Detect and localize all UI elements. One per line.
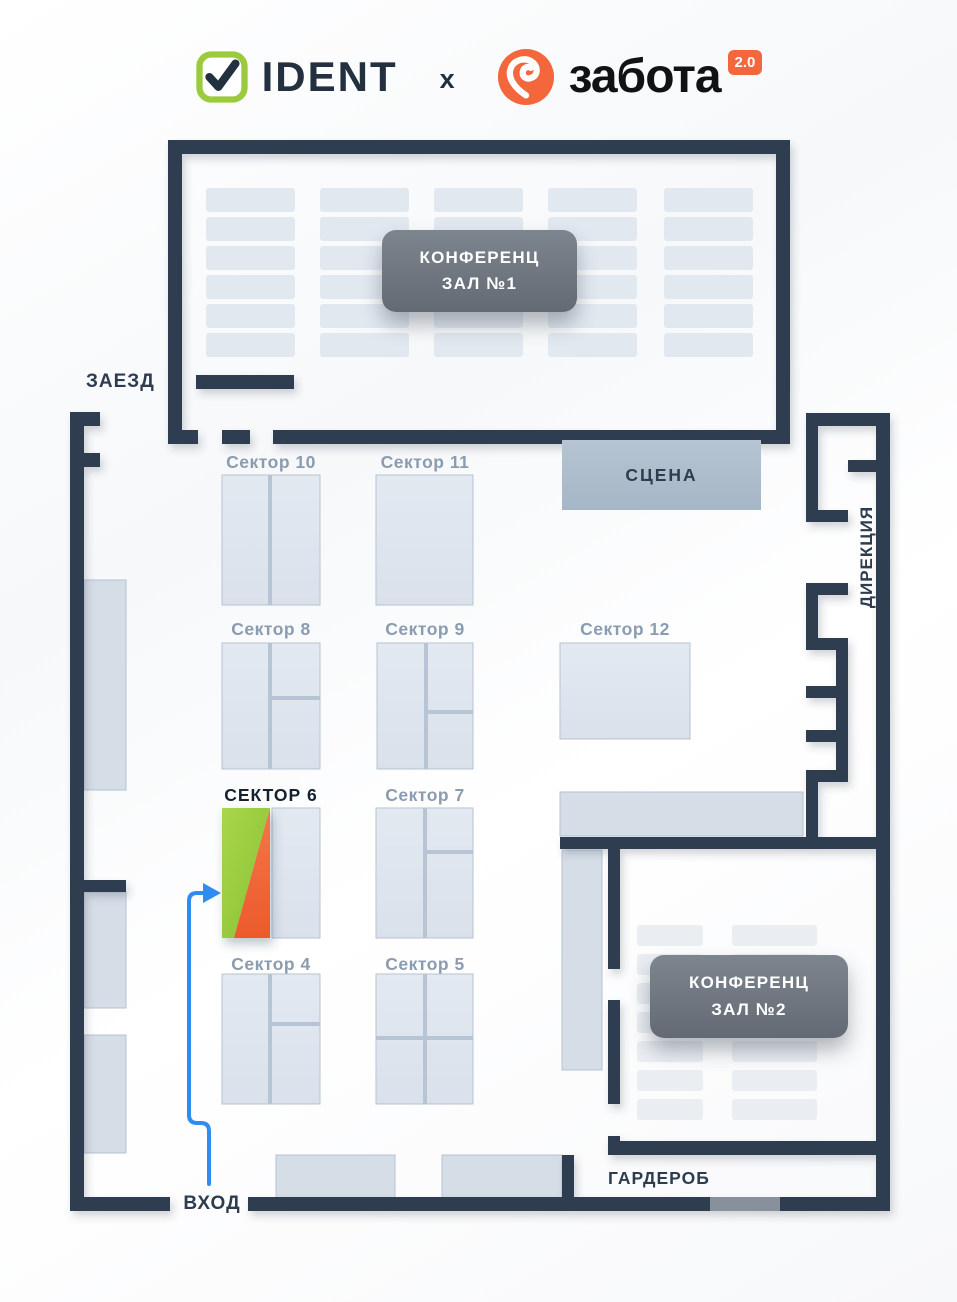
seat-row xyxy=(637,1070,703,1091)
sector-5-label: Сектор 5 xyxy=(385,954,464,975)
seat-row xyxy=(664,246,753,270)
registration-counter xyxy=(562,850,602,1070)
booth-sector-12 xyxy=(560,643,690,739)
entrance-route-arrow xyxy=(189,883,221,1184)
conf-hall-1-line2: ЗАЛ №1 xyxy=(442,271,517,297)
bottom-table-1 xyxy=(276,1155,395,1199)
conference-hall-2-badge: КОНФЕРЕНЦ ЗАЛ №2 xyxy=(650,955,848,1038)
conf-hall-1-line1: КОНФЕРЕНЦ xyxy=(420,245,540,271)
arrowhead-icon xyxy=(203,883,221,903)
sector-7-label: Сектор 7 xyxy=(385,785,464,806)
seat-row xyxy=(664,188,753,212)
seat-row xyxy=(206,275,295,299)
seat-row xyxy=(434,188,523,212)
seat-row xyxy=(548,188,637,212)
seat-row xyxy=(206,188,295,212)
seat-row xyxy=(664,217,753,241)
direction-office-label: ДИРЕКЦИЯ xyxy=(857,477,877,637)
stage-area: СЦЕНА xyxy=(562,440,761,510)
conf-hall-2-line2: ЗАЛ №2 xyxy=(711,997,786,1023)
sector-8-label: Сектор 8 xyxy=(231,619,310,640)
drive-in-label: ЗАЕЗД xyxy=(86,371,155,393)
stage-label: СЦЕНА xyxy=(625,465,697,486)
seat-row xyxy=(206,304,295,328)
seat-row xyxy=(732,1070,817,1091)
sector-6-label: СЕКТОР 6 xyxy=(224,785,318,806)
left-wall-counter-1 xyxy=(84,580,126,790)
long-counter xyxy=(560,792,803,836)
highlighted-booth-sector-6 xyxy=(222,808,270,938)
sector-12-label: Сектор 12 xyxy=(580,619,670,640)
cloakroom-label: ГАРДЕРОБ xyxy=(608,1168,710,1189)
seat-row xyxy=(637,925,703,946)
seat-row xyxy=(206,217,295,241)
seat-row xyxy=(637,1099,703,1120)
venue-floor-plan: IDENT x забота 2.0 xyxy=(0,0,957,1302)
bottom-table-2 xyxy=(442,1155,562,1199)
seat-row xyxy=(320,188,409,212)
seat-row xyxy=(732,1099,817,1120)
entrance-label: ВХОД xyxy=(183,1193,240,1215)
seat-row xyxy=(434,333,523,357)
sector-11-label: Сектор 11 xyxy=(381,452,470,473)
seat-row xyxy=(732,925,817,946)
booth-sector-6-right xyxy=(272,808,320,938)
conf-hall-2-line1: КОНФЕРЕНЦ xyxy=(689,970,809,996)
seat-row xyxy=(548,333,637,357)
seat-row xyxy=(320,333,409,357)
seat-row xyxy=(664,333,753,357)
left-wall-counter-3 xyxy=(84,1035,126,1153)
sector-4-label: Сектор 4 xyxy=(231,954,310,975)
seat-row xyxy=(664,304,753,328)
booth-sector-11 xyxy=(376,475,473,605)
conference-hall-1-badge: КОНФЕРЕНЦ ЗАЛ №1 xyxy=(382,230,577,312)
sector-10-label: Сектор 10 xyxy=(226,452,316,473)
left-wall-counter-2 xyxy=(84,892,126,1008)
seat-row xyxy=(206,333,295,357)
sector-9-label: Сектор 9 xyxy=(385,619,464,640)
seat-row xyxy=(206,246,295,270)
seat-row xyxy=(664,275,753,299)
seat-row xyxy=(732,1041,817,1062)
seat-row xyxy=(637,1041,703,1062)
